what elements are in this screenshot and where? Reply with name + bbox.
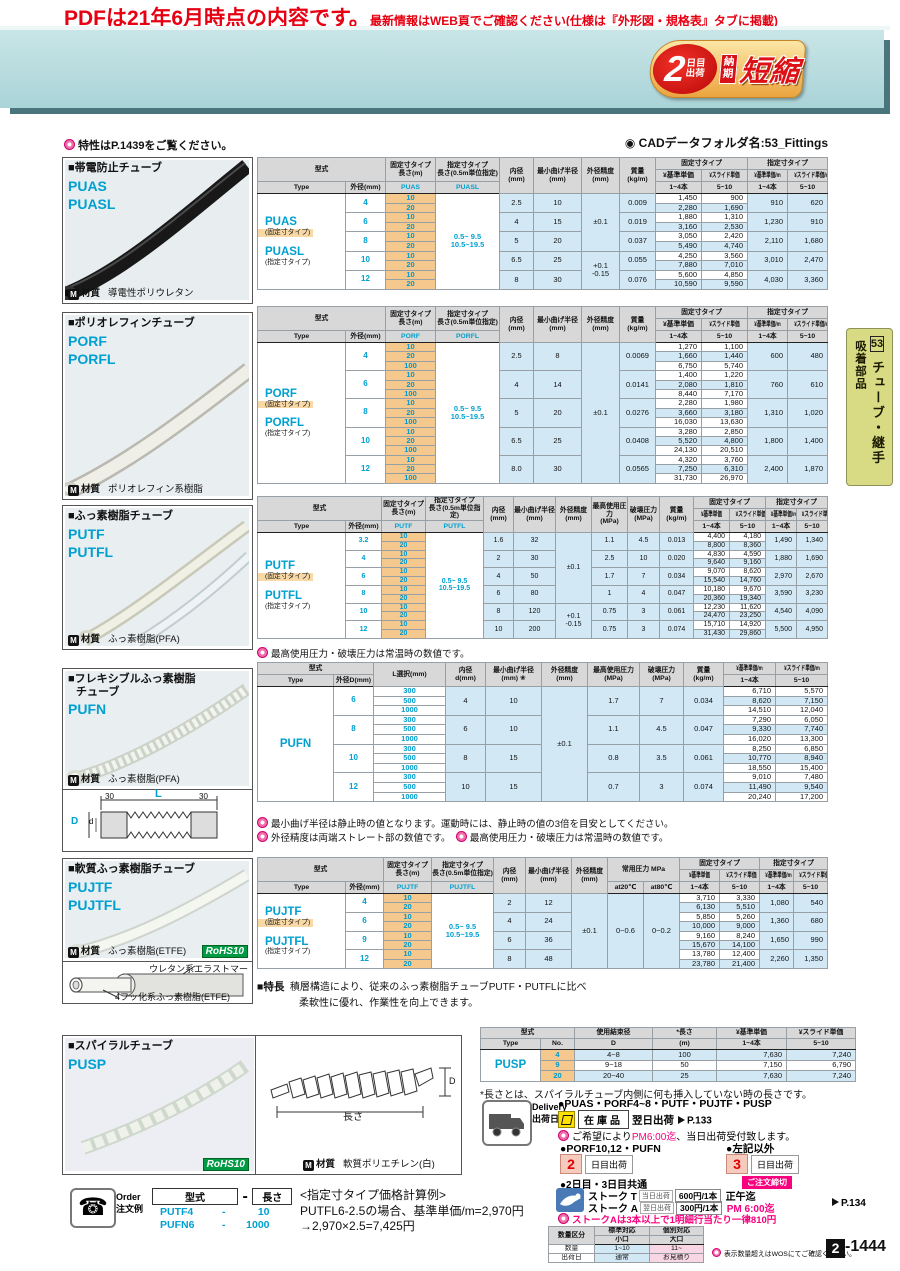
data-cell: 12 [346, 455, 386, 483]
order-col-length: 長さ [252, 1188, 292, 1205]
data-cell: 1,680 [788, 232, 828, 251]
data-cell: 12,400 [720, 950, 760, 959]
data-cell: 7,740 [776, 725, 828, 735]
data-cell: 20~40 [575, 1071, 653, 1082]
badge-delivery-label: 納期 [719, 54, 739, 83]
panel-title: ■ポリオレフィンチューブ [63, 313, 252, 330]
data-cell: 0.0069 [620, 343, 656, 371]
header-cell: 最小曲げ半径(mm) [534, 307, 582, 343]
data-cell: 6 [346, 912, 384, 931]
data-cell: 4.5 [640, 715, 684, 744]
header-cell: 5~10 [776, 675, 828, 687]
data-cell: 0.047 [684, 715, 724, 744]
data-cell: +0.1-0.15 [582, 251, 620, 289]
header-cell: 内径d(mm) [446, 663, 486, 687]
data-cell: 20 [386, 280, 436, 290]
data-cell: 6,310 [702, 465, 748, 474]
header-cell: ¥スライド単価/m [776, 663, 828, 675]
data-cell: 2 [494, 894, 526, 913]
data-cell: 1,220 [702, 371, 748, 380]
order-format: 型式 - 長さ [152, 1188, 292, 1206]
data-cell: 2.5 [500, 343, 534, 371]
cad-icon: ◉ [625, 136, 635, 150]
panel-models: PUFN [63, 698, 252, 718]
data-cell: 20 [534, 232, 582, 251]
data-cell: 10 [386, 427, 436, 436]
data-cell: 0~0.2 [644, 894, 680, 969]
data-cell: 20,360 [694, 594, 730, 603]
data-cell: ±0.1 [542, 687, 588, 802]
data-cell: 8,940 [776, 754, 828, 764]
data-cell: PUJTF(固定寸タイプ)PUJTFL(指定寸タイプ) [258, 894, 346, 969]
feature-block: ■特長 積層構造により、従来のふっ素樹脂チューブPUTF・PUTFLに比べ 柔軟… [257, 978, 586, 1009]
header-cell: 内径(mm) [500, 307, 534, 343]
data-cell: 1,810 [702, 380, 748, 389]
data-cell: 0~0.6 [608, 894, 644, 969]
data-cell: 15 [534, 213, 582, 232]
data-cell: 4 [500, 213, 534, 232]
header-cell: D [575, 1039, 653, 1050]
data-cell: 0.061 [660, 603, 694, 621]
data-cell: 24 [526, 912, 572, 931]
header-cell: (m) [653, 1039, 717, 1050]
header-cell: 固定寸タイプ長さ(m) [382, 497, 426, 521]
data-cell: 18,550 [724, 763, 776, 773]
material-icon: M [68, 947, 79, 958]
pujtf-layer-diagram: ウレタン系エラストマー 4フッ化系ふっ素樹脂(ETFE) [62, 962, 253, 1004]
data-cell: 4,400 [694, 533, 730, 542]
data-cell: 1,490 [766, 533, 797, 551]
header-cell: 外径(mm) [346, 331, 386, 343]
data-cell: 10 [386, 371, 436, 380]
side-tab-tube-fittings: 53 チューブ・継手 吸着部品 [846, 328, 893, 486]
data-cell: 9,330 [724, 725, 776, 735]
data-cell: 8,360 [730, 541, 766, 550]
data-cell: ±0.1 [582, 194, 620, 252]
badge-day-oval: 2 日目出荷 [651, 44, 719, 94]
header-cell: ¥基準単価/m [766, 509, 797, 521]
data-cell: 8,440 [656, 389, 702, 398]
data-cell: 29,860 [730, 630, 766, 639]
panel-antistatic-tube: ■帯電防止チューブ PUASPUASL M材質導電性ポリウレタン [62, 157, 253, 304]
header-cell: 固定寸タイプ [656, 307, 748, 319]
data-cell: 300 [374, 687, 446, 697]
data-cell: 9,590 [702, 280, 748, 290]
data-cell: 5,570 [776, 687, 828, 697]
data-cell: 7,630 [717, 1071, 787, 1082]
data-cell: 500 [374, 782, 446, 792]
data-cell: 6,130 [680, 903, 720, 912]
data-cell: 0.0276 [620, 399, 656, 427]
data-cell: 1,980 [702, 399, 748, 408]
header-cell: 質量(kg/m) [620, 158, 656, 194]
data-cell: 7,290 [724, 715, 776, 725]
badge-main-text: 短縮 [738, 48, 802, 90]
data-cell: 2,970 [766, 568, 797, 586]
panel-title: ■帯電防止チューブ [63, 158, 252, 175]
data-cell: 8 [346, 232, 386, 251]
header-cell: 指定寸タイプ長さ(0.5m単位指定) [436, 307, 500, 331]
data-cell: 0.019 [620, 213, 656, 232]
data-cell: 8 [534, 343, 582, 371]
header-cell: ¥基準単価/m [748, 170, 788, 182]
header-cell: No. [541, 1039, 575, 1050]
header-cell: 破壊圧力(MPa) [640, 663, 684, 687]
data-cell: 3 [628, 603, 660, 621]
data-cell: 2,080 [656, 380, 702, 389]
header-cell: 最高使用圧力(MPa) [588, 663, 640, 687]
pointer-icon [832, 1198, 839, 1206]
header-cell: 指定寸タイプ長さ(0.5m単位指定) [432, 858, 494, 882]
data-cell: 6.5 [500, 427, 534, 455]
data-cell: 7,010 [702, 261, 748, 271]
panel-title: ■フレキシブルふっ素樹脂チューブ [63, 669, 252, 698]
data-cell: 13,780 [680, 950, 720, 959]
data-cell: 1,020 [788, 399, 828, 427]
panel-fluororesin-tube: ■ふっ素樹脂チューブ PUTFPUTFL M材質ふっ素樹脂(PFA) [62, 505, 253, 650]
data-cell: 10 [534, 194, 582, 213]
data-cell: 2,400 [748, 455, 788, 483]
data-cell: 4,850 [702, 270, 748, 280]
header-cell: 1~4本 [656, 182, 702, 194]
data-cell: 540 [794, 894, 828, 913]
data-cell: 10 [384, 950, 432, 959]
data-cell: 910 [788, 213, 828, 232]
pusp-price-table: 型式使用結束径*長さ¥基準単価¥スライド単価TypeNo.D(m)1~4本5~1… [480, 1027, 856, 1082]
header-cell: ¥基準単価/m [724, 663, 776, 675]
flower-icon [257, 831, 268, 842]
header-cell: PORFL [436, 331, 500, 343]
data-cell: 3.2 [346, 533, 382, 551]
header-cell: 最小曲げ半径(mm) [526, 858, 572, 894]
data-cell: 680 [794, 912, 828, 931]
header-cell: ¥スライド単価 [720, 870, 760, 882]
header-cell: 1~4本 [680, 882, 720, 894]
header-cell: 5~10 [787, 1039, 856, 1050]
data-cell: 2,110 [748, 232, 788, 251]
data-cell: 20 [382, 541, 426, 550]
header-cell: 指定寸タイプ [748, 158, 828, 170]
data-cell: 5,260 [720, 912, 760, 921]
stock-row: 在庫品翌日出荷P.133 [558, 1110, 712, 1129]
stork-icon [556, 1188, 584, 1212]
data-cell: 1,350 [794, 950, 828, 969]
data-cell: 10 [486, 715, 542, 744]
order-label: Order注文例 [116, 1192, 143, 1215]
data-cell: 20 [386, 465, 436, 474]
data-cell: 0.034 [684, 687, 724, 716]
data-cell: 610 [788, 371, 828, 399]
note-od-precision: 外径精度は両端ストレート部の数値です。 最高使用圧力・破壊圧力は常温時の数値です… [257, 830, 668, 844]
data-cell: 1,230 [748, 213, 788, 232]
data-cell: 5,600 [656, 270, 702, 280]
data-cell: 4,030 [748, 270, 788, 289]
badge-sub: 日目出荷 [685, 59, 706, 80]
data-cell: 4.5 [628, 533, 660, 551]
data-cell: 15,670 [680, 940, 720, 949]
delivery-truck-iconbox [482, 1100, 532, 1146]
header-cell: 内径(mm) [484, 497, 514, 533]
data-cell: 30 [534, 270, 582, 289]
pufn-dimension-diagram: L 30 30 D d [62, 790, 253, 852]
data-cell: 3,280 [656, 427, 702, 436]
data-cell: 7 [628, 568, 660, 586]
data-cell: 4 [500, 371, 534, 399]
header-cell: Type [258, 521, 346, 533]
data-cell: 1,100 [702, 343, 748, 352]
data-cell: 1.6 [484, 533, 514, 551]
data-cell: 8 [334, 715, 374, 744]
data-cell: 1,270 [656, 343, 702, 352]
material-icon: M [68, 775, 79, 786]
data-cell: 3,360 [788, 270, 828, 289]
stock-label: 在庫品 [578, 1110, 629, 1129]
data-cell: 0.5~ 9.510.5~19.5 [426, 533, 484, 639]
data-cell: 20 [541, 1071, 575, 1082]
data-cell: 100 [386, 418, 436, 427]
data-cell: 7,240 [787, 1071, 856, 1082]
data-cell: 50 [653, 1060, 717, 1071]
header-cell: PUJTF [384, 882, 432, 894]
data-cell: 1,400 [788, 427, 828, 455]
data-cell: 10 [486, 687, 542, 716]
data-cell: 6.5 [500, 251, 534, 270]
header-cell: PUAS [386, 182, 436, 194]
flower-icon [558, 1130, 569, 1141]
data-cell: 4 [346, 894, 384, 913]
puas-price-table: 型式固定寸タイプ長さ(m)指定寸タイプ長さ(0.5m単位指定)内径(mm)最小曲… [257, 157, 828, 290]
data-cell: 5,740 [702, 361, 748, 370]
header-cell: 外径(mm) [346, 521, 382, 533]
data-cell: 10 [484, 621, 514, 639]
data-cell: 8,240 [720, 931, 760, 940]
header-cell: ¥基準単価 [656, 170, 702, 182]
data-cell: 7,240 [787, 1050, 856, 1061]
data-cell: 100 [386, 361, 436, 370]
ship-day-3: 3日目出荷 [726, 1154, 799, 1174]
data-cell: 1,690 [702, 203, 748, 213]
feature-title: ■特長 [257, 981, 284, 993]
data-cell: 14,760 [730, 577, 766, 586]
label-outer-layer: ウレタン系エラストマー [149, 962, 248, 975]
data-cell: 0.75 [592, 603, 628, 621]
data-cell: 480 [788, 343, 828, 371]
data-cell: 1,080 [760, 894, 794, 913]
data-cell: 25 [534, 251, 582, 270]
header-cell: 型式 [258, 307, 386, 331]
header-cell: 外径精度(mm) [582, 307, 620, 343]
header-cell: at80℃ [644, 882, 680, 894]
data-cell: 2,850 [702, 427, 748, 436]
data-cell: 3,760 [702, 455, 748, 464]
two-day-shipping-badge: 2 日目出荷 納期 短縮 [647, 40, 806, 98]
panel-models: PUTFPUTFL [63, 523, 252, 561]
flower-icon [257, 817, 268, 828]
data-cell: 4 [346, 194, 386, 213]
data-cell: 1,870 [788, 455, 828, 483]
header-cell: Type [258, 882, 346, 894]
header-cell: PUJTFL [432, 882, 494, 894]
data-cell: 2.5 [592, 550, 628, 568]
data-cell: 10,590 [656, 280, 702, 290]
data-cell: 2,280 [656, 399, 702, 408]
feature-reference-note: 特性はP.1439をご覧ください。 [64, 137, 232, 153]
data-cell: 0.061 [684, 744, 724, 773]
header-cell: Type [481, 1039, 541, 1050]
header-cell: 固定寸タイプ長さ(m) [384, 858, 432, 882]
header-cell: 内径(mm) [494, 858, 526, 894]
data-cell: 4 [494, 912, 526, 931]
data-cell: 0.5~ 9.510.5~19.5 [436, 194, 500, 290]
data-cell: 1,660 [656, 352, 702, 361]
data-cell: 5,850 [680, 912, 720, 921]
data-cell: 200 [514, 621, 556, 639]
data-cell: 10,180 [694, 585, 730, 594]
data-cell: 1~10 [595, 1245, 650, 1254]
data-cell: 20 [386, 261, 436, 271]
data-cell: 8 [346, 399, 386, 427]
data-cell: 0.055 [620, 251, 656, 270]
data-cell: 4 [346, 550, 382, 568]
header-cell: Type [258, 182, 346, 194]
data-cell: 0.037 [620, 232, 656, 251]
header-cell: ¥基準単価/m [748, 319, 788, 331]
data-cell: 10 [386, 343, 436, 352]
header-cell: 使用結束径 [575, 1028, 653, 1039]
side-tab-main: 53 チューブ・継手 [868, 336, 887, 485]
header-cell: 1~4本 [694, 521, 730, 533]
data-cell: 5 [500, 232, 534, 251]
header-cell: 外径精度(mm) [542, 663, 588, 687]
data-cell: 20 [384, 903, 432, 912]
data-cell: 9,070 [694, 568, 730, 577]
header-cell: PUASL [436, 182, 500, 194]
data-cell: 11,620 [730, 603, 766, 612]
data-cell: 0.020 [660, 550, 694, 568]
header-cell: ¥スライド単価/m [797, 509, 828, 521]
ref-p134: P.134 [841, 1198, 866, 1209]
data-cell: 4,540 [766, 603, 797, 621]
data-cell: 6 [346, 371, 386, 399]
data-cell: 6,050 [776, 715, 828, 725]
data-cell: 14,510 [724, 706, 776, 716]
data-cell: 9,010 [724, 773, 776, 783]
header-cell: 指定寸タイプ長さ(0.5m単位指定) [436, 158, 500, 182]
data-cell: PUSP [481, 1050, 541, 1082]
note-pressure-t3: 最高使用圧力・破壊圧力は常温時の数値です。 [257, 646, 470, 660]
data-cell: 20 [382, 559, 426, 568]
data-cell: 10 [382, 603, 426, 612]
header-cell: 1~4本 [760, 882, 794, 894]
data-cell: 500 [374, 696, 446, 706]
data-cell: 3,660 [656, 408, 702, 417]
data-cell: 10 [446, 773, 486, 802]
header-cell: ¥スライド単価/m [788, 319, 828, 331]
header-cell: 最小曲げ半径(mm) [534, 158, 582, 194]
material-line: M材質ふっ素樹脂(ETFE) [68, 943, 186, 958]
data-cell: 4 [628, 585, 660, 603]
data-cell: 9,540 [776, 782, 828, 792]
label-inner-layer: 4フッ化系ふっ素樹脂(ETFE) [115, 990, 230, 1003]
data-cell: 20 [382, 630, 426, 639]
note-bend-radius: 最小曲げ半径は静止時の値となります。運動時には、静止時の値の3倍を目安としてくだ… [257, 816, 673, 830]
panel-title: ■スパイラルチューブ [63, 1036, 461, 1053]
data-cell: 20 [382, 594, 426, 603]
header-cell: Type [258, 331, 346, 343]
data-cell: 9,160 [730, 559, 766, 568]
data-cell: 20 [386, 436, 436, 445]
data-cell: 4 [484, 568, 514, 586]
data-cell: 10 [346, 427, 386, 455]
material-icon: M [68, 635, 79, 646]
data-cell: 4,180 [730, 533, 766, 542]
data-cell: 1.1 [588, 715, 640, 744]
data-cell: 1.7 [588, 687, 640, 716]
data-cell: 10 [334, 744, 374, 773]
header-cell: 型式 [258, 858, 384, 882]
data-cell: 10 [386, 455, 436, 464]
data-cell: 300 [374, 715, 446, 725]
material-line: M材質軟質ポリエチレン(白) [303, 1156, 435, 1171]
data-cell: 2,470 [788, 251, 828, 270]
data-cell: 1,360 [760, 912, 794, 931]
data-cell: 2,420 [702, 232, 748, 242]
data-cell: 50 [514, 568, 556, 586]
data-cell: PUFN [258, 687, 334, 802]
ship-day-2-num: 2 [560, 1154, 582, 1174]
data-cell: 300 [374, 744, 446, 754]
data-cell: 1.1 [592, 533, 628, 551]
header-cell: 型式 [258, 158, 386, 182]
header-cell: ¥スライド単価 [730, 509, 766, 521]
header-cell: 最小曲げ半径(mm) ❀ [486, 663, 542, 687]
header-cell: 内径(mm) [500, 158, 534, 194]
header-cell: ¥スライド単価/m [788, 170, 828, 182]
header-cell: 外径精度(mm) [582, 158, 620, 194]
data-cell: 3.5 [640, 744, 684, 773]
rohs-badge: RoHS10 [202, 945, 248, 958]
header-cell: 型式 [258, 497, 382, 521]
data-cell: 0.7 [588, 773, 640, 802]
panel-spiral-tube: ■スパイラルチューブ PUSP RoHS10 長さ D M材質軟質ポリエチレン(… [62, 1035, 462, 1175]
data-cell: 4,800 [702, 436, 748, 445]
data-cell: 3,180 [702, 408, 748, 417]
header-cell: 指定寸タイプ長さ(0.5m単位指定) [426, 497, 484, 521]
data-cell: 9,160 [680, 931, 720, 940]
data-cell: 9 [541, 1060, 575, 1071]
data-cell: 14,920 [730, 621, 766, 630]
data-cell: 3,330 [720, 894, 760, 903]
data-cell: 8 [446, 744, 486, 773]
header-cell: 固定寸タイプ [680, 858, 760, 870]
data-cell: 12 [334, 773, 374, 802]
data-cell: 2.5 [500, 194, 534, 213]
data-cell: 3,710 [680, 894, 720, 903]
data-cell: 7,480 [776, 773, 828, 783]
data-cell: 1 [592, 585, 628, 603]
header-cell: 1~4本 [717, 1039, 787, 1050]
data-cell: 6 [494, 931, 526, 950]
header-cell: 1~4本 [748, 182, 788, 194]
data-cell: 6,790 [787, 1060, 856, 1071]
data-cell: 10 [346, 251, 386, 270]
data-cell: 7,150 [776, 696, 828, 706]
data-cell: 6 [346, 213, 386, 232]
data-cell: 7,150 [717, 1060, 787, 1071]
header-cell: 最高使用圧力(MPa) [592, 497, 628, 533]
data-cell: 2,530 [702, 222, 748, 232]
data-cell: 0.074 [660, 621, 694, 639]
